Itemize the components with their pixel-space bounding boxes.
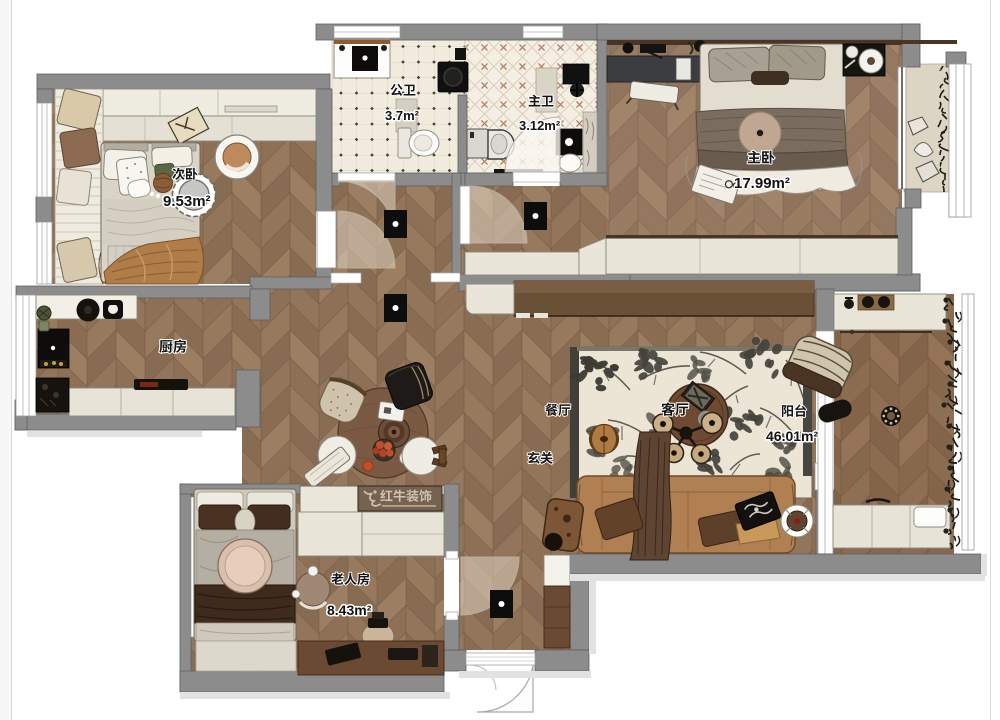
svg-text:46.01m²: 46.01m² bbox=[766, 428, 818, 444]
svg-text:8.43m²: 8.43m² bbox=[327, 602, 372, 618]
svg-text:3.12m²: 3.12m² bbox=[519, 118, 561, 133]
svg-text:3.7m²: 3.7m² bbox=[385, 108, 420, 123]
svg-text:9.53m²: 9.53m² bbox=[163, 193, 211, 210]
svg-text:17.99m²: 17.99m² bbox=[734, 175, 790, 192]
